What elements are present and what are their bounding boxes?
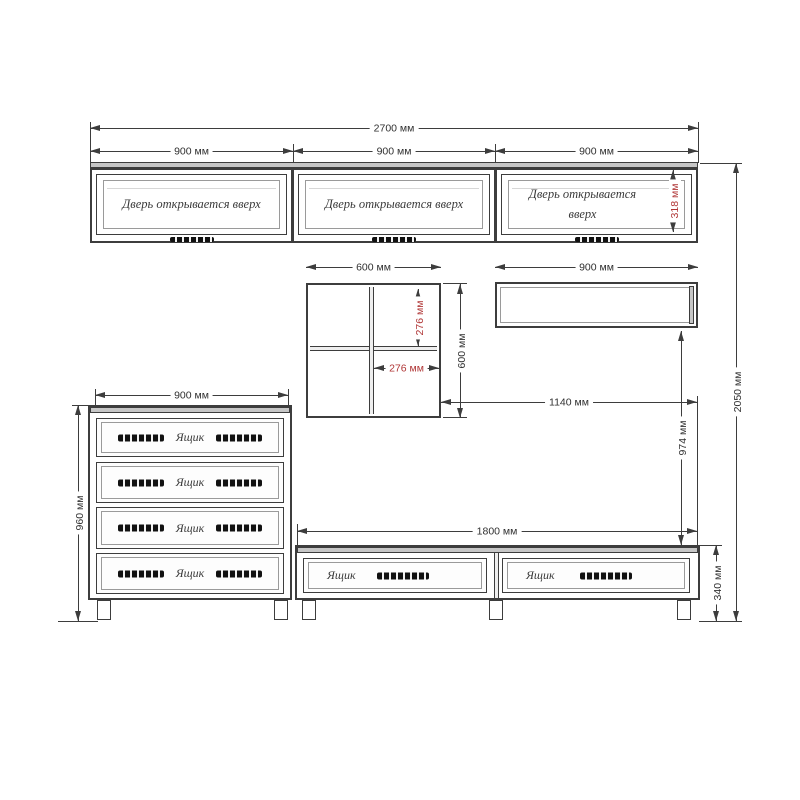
- dim-total-height: 2050 мм: [736, 163, 737, 621]
- wall-shelf-inner: [500, 287, 693, 323]
- extension-line: [697, 396, 698, 545]
- extension-line: [443, 283, 467, 284]
- arrow-down-icon: [678, 535, 684, 545]
- dim-niche-width: 1140 мм: [441, 402, 697, 403]
- tv-stand-leg: [677, 600, 691, 620]
- arrow-down-icon: [733, 611, 739, 621]
- drawer-front: Ящик: [507, 562, 685, 589]
- dim-dresser-height: 960 мм: [78, 405, 79, 621]
- arrow-left-icon: [374, 365, 384, 371]
- dim-cube-width: 600 мм: [306, 267, 441, 268]
- dim-label: 1140 мм: [545, 397, 593, 409]
- dim-label: 2050 мм: [732, 368, 744, 417]
- tv-drawer-1: Ящик: [303, 558, 487, 593]
- door-label: Дверь открывается вверх: [117, 195, 266, 214]
- arrow-left-icon: [90, 125, 100, 131]
- cabinet-door: Дверь открывается вверх: [501, 174, 692, 235]
- dim-niche-height: 974 мм: [681, 331, 682, 545]
- tv-stand-leg: [489, 600, 503, 620]
- dim-cube-cell-height: 276 мм: [418, 289, 419, 346]
- arrow-down-icon: [457, 408, 463, 418]
- arrow-up-icon: [733, 163, 739, 173]
- dim-dresser-width: 900 мм: [95, 395, 288, 396]
- arrow-right-icon: [283, 148, 293, 154]
- arrow-down-icon: [670, 222, 676, 232]
- dim-label: 600 мм: [456, 330, 468, 373]
- dresser-drawer-3: Ящик: [96, 507, 284, 549]
- arrow-left-icon: [297, 528, 307, 534]
- drawer-handle: [377, 572, 429, 579]
- wall-shelf: [495, 282, 698, 328]
- arrow-right-icon: [485, 148, 495, 154]
- dim-door-height: 318 мм: [673, 170, 674, 232]
- door-handle: [170, 237, 214, 242]
- dim-cube-height: 600 мм: [460, 284, 461, 418]
- arrow-up-icon: [713, 545, 719, 555]
- drawer-handle: [118, 525, 164, 532]
- cube-shelf-vertical-divider: [369, 287, 374, 414]
- arrow-right-icon: [278, 392, 288, 398]
- arrow-left-icon: [293, 148, 303, 154]
- arrow-up-icon: [75, 405, 81, 415]
- arrow-down-icon: [713, 611, 719, 621]
- dim-total-width: 2700 мм: [90, 128, 698, 129]
- extension-line: [288, 389, 289, 405]
- dim-label: 1800 мм: [473, 526, 522, 538]
- dim-cabinet1-width: 900 мм: [90, 151, 293, 152]
- dim-label: 276 мм: [414, 296, 426, 339]
- wall-cabinet-1: Дверь открывается вверх: [90, 168, 293, 243]
- dim-label: 340 мм: [712, 562, 724, 605]
- arrow-up-icon: [678, 331, 684, 341]
- dresser-drawer-4: Ящик: [96, 553, 284, 594]
- arrow-up-icon: [670, 170, 676, 180]
- dim-label: 960 мм: [74, 492, 86, 535]
- drawer-label: Ящик: [176, 430, 205, 445]
- arrow-down-icon: [75, 611, 81, 621]
- extension-line: [699, 621, 742, 622]
- arrow-left-icon: [306, 264, 316, 270]
- drawer-handle: [118, 479, 164, 486]
- drawer-handle: [118, 434, 164, 441]
- door-label: Дверь открывается вверх: [521, 185, 644, 224]
- drawer-label: Ящик: [327, 568, 356, 583]
- tv-drawer-2: Ящик: [502, 558, 690, 593]
- arrow-left-icon: [441, 399, 451, 405]
- wall-cabinet-2: Дверь открывается вверх: [292, 168, 496, 243]
- dim-cabinet3-width: 900 мм: [495, 151, 698, 152]
- dresser-top-panel: [90, 407, 290, 413]
- cabinet-door: Дверь открывается вверх: [96, 174, 287, 235]
- drawer-front: Ящик: [101, 511, 279, 545]
- dim-cabinet2-width: 900 мм: [293, 151, 495, 152]
- dresser-leg: [274, 600, 288, 620]
- dim-label: 900 мм: [373, 146, 416, 158]
- drawer-handle: [216, 434, 262, 441]
- arrow-left-icon: [495, 148, 505, 154]
- dim-label: 974 мм: [677, 417, 689, 460]
- door-label: Дверь открывается вверх: [319, 195, 469, 214]
- cabinet-door: Дверь открывается вверх: [298, 174, 490, 235]
- arrow-left-icon: [95, 392, 105, 398]
- tv-stand-leg: [302, 600, 316, 620]
- cabinet-door-panel: Дверь открывается вверх: [305, 180, 483, 229]
- dresser-drawer-2: Ящик: [96, 462, 284, 503]
- door-handle: [372, 237, 416, 242]
- cabinet-door-panel: Дверь открывается вверх: [508, 180, 685, 229]
- arrow-right-icon: [688, 264, 698, 270]
- drawer-front: Ящик: [308, 562, 482, 589]
- drawer-handle: [216, 479, 262, 486]
- cabinet-door-panel: Дверь открывается вверх: [103, 180, 280, 229]
- dim-wall-shelf-width: 900 мм: [495, 267, 698, 268]
- arrow-right-icon: [688, 125, 698, 131]
- drawer-handle: [216, 525, 262, 532]
- extension-line: [58, 621, 98, 622]
- drawer-handle: [580, 572, 632, 579]
- arrow-right-icon: [688, 148, 698, 154]
- dim-label: 900 мм: [575, 262, 618, 274]
- extension-line: [443, 417, 467, 418]
- dim-tv-width: 1800 мм: [297, 531, 697, 532]
- dim-label: 600 мм: [352, 262, 395, 274]
- dresser-drawer-1: Ящик: [96, 418, 284, 457]
- drawer-front: Ящик: [101, 557, 279, 590]
- dim-label: 900 мм: [170, 146, 213, 158]
- arrow-right-icon: [687, 528, 697, 534]
- arrow-right-icon: [429, 365, 439, 371]
- drawer-label: Ящик: [526, 568, 555, 583]
- arrow-left-icon: [495, 264, 505, 270]
- dim-label: 900 мм: [170, 390, 213, 402]
- arrow-left-icon: [90, 148, 100, 154]
- drawer-front: Ящик: [101, 466, 279, 499]
- drawer-handle: [118, 570, 164, 577]
- extension-line: [698, 122, 699, 163]
- dim-label: 276 мм: [385, 363, 428, 375]
- drawer-label: Ящик: [176, 475, 205, 490]
- dresser-leg: [97, 600, 111, 620]
- drawer-label: Ящик: [176, 566, 205, 581]
- arrow-up-icon: [457, 284, 463, 294]
- door-handle: [575, 237, 619, 242]
- drawer-handle: [216, 570, 262, 577]
- dim-cube-cell-width: 276 мм: [374, 368, 439, 369]
- wall-shelf-side-panel: [689, 286, 694, 324]
- dim-label: 318 мм: [669, 180, 681, 223]
- wall-cabinet-3: Дверь открывается вверх: [495, 168, 698, 243]
- drawer-label: Ящик: [176, 521, 205, 536]
- arrow-right-icon: [431, 264, 441, 270]
- arrow-right-icon: [687, 399, 697, 405]
- dim-tv-height: 340 мм: [716, 545, 717, 621]
- drawer-front: Ящик: [101, 422, 279, 453]
- furniture-technical-drawing: Дверь открывается вверх Дверь открываетс…: [0, 0, 800, 800]
- dim-label: 2700 мм: [370, 123, 419, 135]
- dim-label: 900 мм: [575, 146, 618, 158]
- tv-stand-divider: [494, 553, 499, 598]
